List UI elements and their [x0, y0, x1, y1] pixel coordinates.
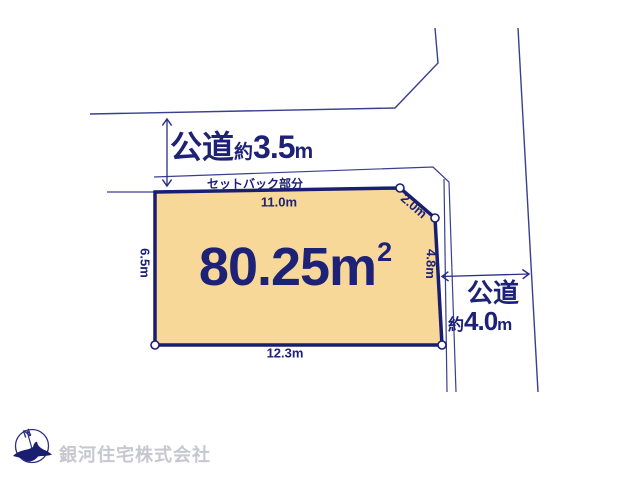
- top-road-unit: m: [295, 140, 314, 163]
- plot-area-label: 80.25m2: [199, 240, 391, 294]
- company-name: 銀河住宅株式会社: [59, 446, 211, 464]
- dimension-left: 6.5m: [139, 248, 152, 278]
- vertex-marker: [431, 214, 439, 222]
- road-edge-inner-line: [444, 179, 447, 392]
- dimension-right: 4.8m: [424, 249, 438, 279]
- compass-icon: N: [8, 422, 60, 474]
- land-plot-diagram: 公道約3.5m セットバック部分 11.0m 6.5m 4.8m 2.0m 12…: [0, 0, 640, 480]
- top-road-approx: 約: [234, 142, 253, 163]
- dimension-top: 11.0m: [261, 196, 297, 209]
- right-road-approx: 約: [448, 317, 464, 334]
- right-road-name: 公道: [467, 280, 519, 306]
- right-road-width-label: 約4.0m: [448, 308, 512, 334]
- vertex-marker: [151, 341, 159, 349]
- vertex-marker: [438, 341, 446, 349]
- right-road-width-arrow: [442, 274, 529, 277]
- top-road-name: 公道: [170, 129, 234, 165]
- vertex-marker: [396, 184, 404, 192]
- area-value: 80.25: [199, 237, 329, 297]
- top-road-label: 公道約3.5m: [170, 131, 313, 163]
- area-unit: m: [329, 237, 376, 297]
- right-road-unit: m: [497, 315, 512, 334]
- setback-label: セットバック部分: [207, 178, 303, 190]
- dimension-bottom: 12.3m: [267, 347, 304, 360]
- area-exponent: 2: [377, 237, 391, 267]
- top-road-width-value: 3.5: [253, 129, 294, 165]
- top-road-boundary-line: [90, 28, 438, 114]
- right-road-boundary-line: [518, 28, 538, 392]
- right-road-width-value: 4.0: [464, 306, 497, 336]
- compass-bird-shape: [13, 442, 52, 462]
